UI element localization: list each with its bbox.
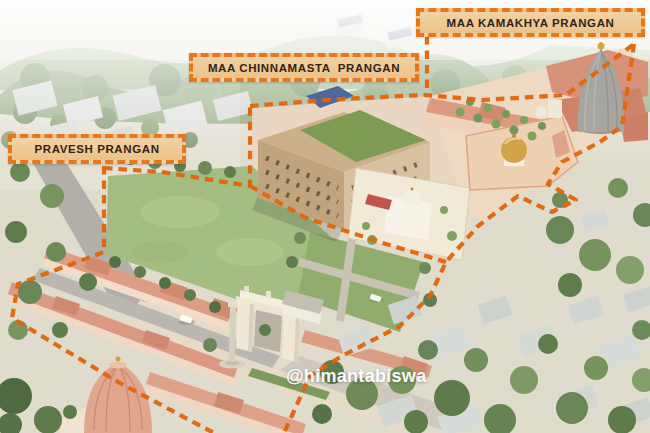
label-chinnamasta-prangan: MAA CHINNAMASTA PRANGAN: [189, 53, 419, 82]
label-pravesh-prangan: PRAVESH PRANGAN: [8, 134, 186, 164]
watermark-handle: @himantabiswa: [286, 366, 426, 387]
aerial-masterplan-render: PRAVESH PRANGAN MAA CHINNAMASTA PRANGAN …: [0, 0, 650, 433]
label-kamakhya-prangan: MAA KAMAKHYA PRANGAN: [416, 8, 645, 37]
